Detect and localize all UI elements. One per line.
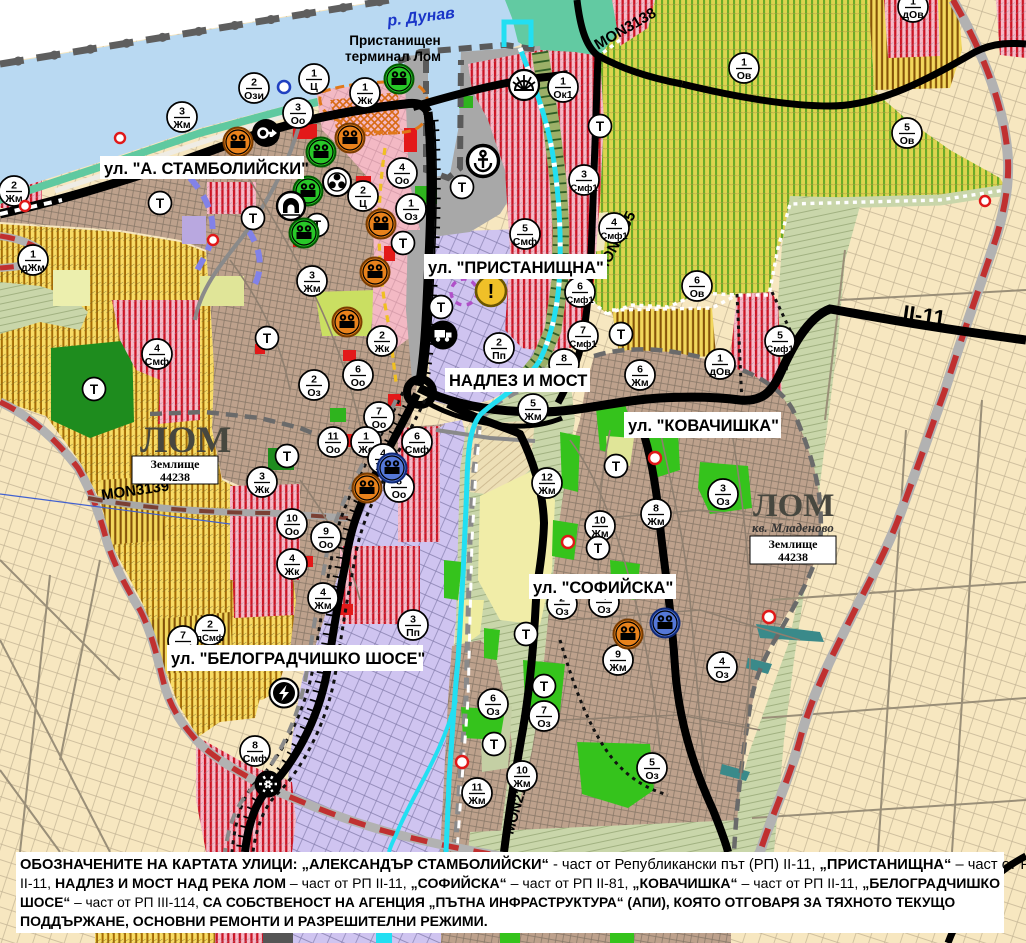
svg-text:6: 6: [355, 364, 361, 376]
svg-text:Т: Т: [283, 449, 292, 464]
svg-text:44238: 44238: [778, 550, 808, 564]
svg-text:5: 5: [530, 398, 536, 410]
svg-text:Смф1: Смф1: [766, 344, 794, 355]
svg-text:!: !: [488, 281, 495, 303]
svg-text:Жм: Жм: [646, 516, 664, 528]
svg-text:Жм: Жм: [537, 485, 555, 497]
svg-text:Жк: Жк: [254, 484, 270, 496]
svg-text:Жм: Жм: [512, 778, 530, 790]
svg-text:2: 2: [207, 619, 213, 631]
svg-text:ПОДДЪРЖАНЕ, ОСНОВНИ РЕМОНТИ И: ПОДДЪРЖАНЕ, ОСНОВНИ РЕМОНТИ И РАЗРЕШИТЕЛ…: [20, 913, 488, 929]
svg-text:10: 10: [516, 765, 528, 777]
svg-text:2: 2: [311, 374, 317, 386]
svg-text:Оо: Оо: [319, 539, 334, 551]
svg-text:3: 3: [410, 614, 416, 626]
svg-text:Оо: Оо: [326, 444, 341, 456]
svg-text:Оо: Оо: [351, 377, 366, 389]
svg-text:3: 3: [259, 471, 265, 483]
svg-text:Жм: Жм: [302, 283, 320, 295]
svg-text:1: 1: [363, 431, 369, 443]
svg-text:Оз: Оз: [555, 606, 568, 618]
svg-text:3: 3: [179, 106, 185, 118]
svg-text:Т: Т: [612, 459, 621, 474]
svg-text:ул. "А. СТАМБОЛИЙСКИ": ул. "А. СТАМБОЛИЙСКИ": [104, 159, 309, 178]
svg-text:12: 12: [541, 472, 553, 484]
svg-text:Жк: Жк: [357, 95, 373, 107]
svg-text:Оо: Оо: [291, 115, 306, 127]
svg-text:дСмф: дСмф: [196, 633, 224, 644]
svg-text:4: 4: [399, 162, 405, 174]
svg-text:ЛОМ: ЛОМ: [753, 488, 834, 524]
svg-text:дОв: дОв: [902, 9, 924, 21]
svg-text:Землище: Землище: [151, 457, 201, 471]
svg-text:Жм: Жм: [467, 795, 485, 807]
svg-text:9: 9: [615, 649, 621, 661]
svg-text:Жм: Жм: [523, 411, 541, 423]
svg-text:Т: Т: [399, 236, 408, 251]
svg-text:Пп: Пп: [406, 627, 420, 639]
svg-text:Оз: Оз: [645, 770, 658, 782]
svg-text:8: 8: [653, 503, 659, 515]
svg-text:Смф1: Смф1: [600, 231, 628, 242]
svg-text:Оз: Оз: [716, 496, 729, 508]
svg-text:5: 5: [777, 330, 783, 342]
svg-text:Жк: Жк: [374, 343, 390, 355]
svg-text:6: 6: [414, 431, 420, 443]
svg-text:2: 2: [360, 185, 366, 197]
svg-text:44238: 44238: [160, 470, 190, 484]
svg-text:4: 4: [320, 587, 326, 599]
svg-text:Т: Т: [263, 331, 272, 346]
svg-text:Оо: Оо: [392, 489, 407, 501]
svg-text:Смф1: Смф1: [569, 339, 597, 350]
svg-text:Смф: Смф: [405, 444, 429, 456]
svg-text:11: 11: [471, 782, 482, 794]
svg-text:4: 4: [611, 217, 617, 229]
svg-text:терминал Лом: терминал Лом: [345, 49, 441, 64]
svg-text:1: 1: [910, 0, 916, 8]
svg-text:3: 3: [309, 270, 315, 282]
svg-text:3: 3: [295, 102, 301, 114]
svg-text:Т: Т: [540, 679, 549, 694]
svg-text:Оз: Оз: [715, 669, 728, 681]
svg-text:6: 6: [577, 281, 583, 293]
svg-text:II-11, НАДЛЕЗ И МОСТ НАД РЕКА: II-11, НАДЛЕЗ И МОСТ НАД РЕКА ЛОМ – част…: [20, 874, 1000, 891]
svg-text:4: 4: [289, 553, 295, 565]
svg-text:дЖм: дЖм: [21, 262, 45, 274]
svg-text:7: 7: [580, 325, 586, 337]
svg-text:2: 2: [496, 337, 502, 349]
svg-text:5: 5: [522, 223, 528, 235]
svg-text:Оз: Оз: [486, 706, 499, 718]
svg-text:8: 8: [252, 740, 258, 752]
svg-text:ЛОМ: ЛОМ: [140, 420, 231, 461]
svg-text:Т: Т: [249, 211, 258, 226]
svg-text:НАДЛЕЗ И МОСТ: НАДЛЕЗ И МОСТ: [449, 372, 587, 390]
svg-text:6: 6: [694, 275, 700, 287]
svg-text:Т: Т: [458, 180, 467, 195]
svg-text:1: 1: [30, 249, 36, 261]
svg-text:Смф: Смф: [513, 236, 537, 248]
svg-text:Ов: Ов: [900, 135, 915, 147]
svg-text:1: 1: [408, 198, 414, 210]
svg-text:4: 4: [719, 656, 725, 668]
svg-text:Смф1: Смф1: [570, 183, 598, 194]
svg-text:6: 6: [637, 364, 643, 376]
svg-text:Ок1: Ок1: [553, 89, 572, 101]
svg-text:Оз: Оз: [537, 718, 550, 730]
svg-text:1: 1: [741, 57, 747, 69]
svg-text:7: 7: [541, 705, 547, 717]
svg-text:4: 4: [154, 343, 160, 355]
svg-text:дОв: дОв: [709, 366, 731, 378]
svg-text:Т: Т: [490, 737, 499, 752]
svg-text:Т: Т: [156, 196, 165, 211]
svg-text:Ц: Ц: [310, 81, 318, 93]
svg-text:ШОСЕ“ – част от РП III-114, СА: ШОСЕ“ – част от РП III-114, СА СОБСТВЕНО…: [20, 895, 955, 910]
svg-text:1: 1: [717, 353, 723, 365]
svg-text:Т: Т: [522, 627, 531, 642]
svg-text:ул. "ПРИСТАНИЩНА": ул. "ПРИСТАНИЩНА": [428, 259, 604, 277]
svg-text:Т: Т: [437, 300, 446, 315]
svg-text:10: 10: [594, 515, 606, 527]
svg-text:9: 9: [323, 526, 329, 538]
svg-text:Ц: Ц: [359, 198, 367, 210]
svg-text:7: 7: [180, 630, 186, 642]
svg-text:ул. "БЕЛОГРАДЧИШКО ШОСЕ": ул. "БЕЛОГРАДЧИШКО ШОСЕ": [171, 650, 425, 668]
svg-text:3: 3: [581, 169, 587, 181]
svg-text:Ов: Ов: [690, 288, 705, 300]
svg-text:Жм: Жм: [630, 377, 648, 389]
svg-text:Т: Т: [596, 119, 605, 134]
svg-text:1: 1: [311, 68, 317, 80]
svg-text:3: 3: [720, 483, 726, 495]
svg-text:Смф: Смф: [145, 356, 169, 368]
svg-text:Оо: Оо: [395, 175, 410, 187]
svg-text:Оз: Оз: [597, 604, 610, 616]
svg-text:Смф: Смф: [243, 753, 267, 765]
svg-text:Оз: Оз: [404, 211, 417, 223]
svg-text:Жк: Жк: [284, 566, 300, 578]
svg-text:Пристанищен: Пристанищен: [349, 33, 440, 48]
svg-text:Т: Т: [617, 327, 626, 342]
svg-text:Т: Т: [594, 541, 603, 556]
svg-text:2: 2: [251, 77, 257, 89]
svg-text:Ов: Ов: [737, 70, 752, 82]
svg-text:Т: Т: [90, 382, 99, 397]
svg-text:Землище: Землище: [769, 537, 819, 551]
svg-text:ул. "СОФИЙСКА": ул. "СОФИЙСКА": [533, 578, 673, 597]
svg-text:11: 11: [327, 431, 338, 443]
svg-text:6: 6: [490, 693, 496, 705]
svg-text:Жм: Жм: [608, 662, 626, 674]
svg-text:2: 2: [11, 180, 17, 192]
svg-text:ОБОЗНАЧЕНИТЕ НА КАРТАТА УЛИЦИ:: ОБОЗНАЧЕНИТЕ НА КАРТАТА УЛИЦИ: „АЛЕКСАНД…: [20, 855, 1026, 873]
svg-text:кв. Младеново: кв. Младеново: [752, 520, 834, 535]
svg-text:1: 1: [560, 76, 566, 88]
svg-text:ул. "КОВАЧИШКА": ул. "КОВАЧИШКА": [628, 417, 779, 435]
svg-text:Смф1: Смф1: [566, 295, 594, 306]
svg-text:10: 10: [286, 513, 298, 525]
svg-text:Жм: Жм: [172, 119, 190, 131]
svg-text:7: 7: [376, 406, 382, 418]
svg-text:Ози: Ози: [244, 90, 264, 102]
svg-text:1: 1: [362, 82, 368, 94]
svg-text:8: 8: [561, 353, 567, 365]
svg-text:5: 5: [649, 757, 655, 769]
svg-text:2: 2: [379, 330, 385, 342]
svg-text:5: 5: [904, 122, 910, 134]
svg-text:Оо: Оо: [285, 526, 300, 538]
svg-text:Жм: Жм: [313, 600, 331, 612]
svg-text:Оз: Оз: [307, 387, 320, 399]
svg-text:Пп: Пп: [492, 350, 506, 362]
